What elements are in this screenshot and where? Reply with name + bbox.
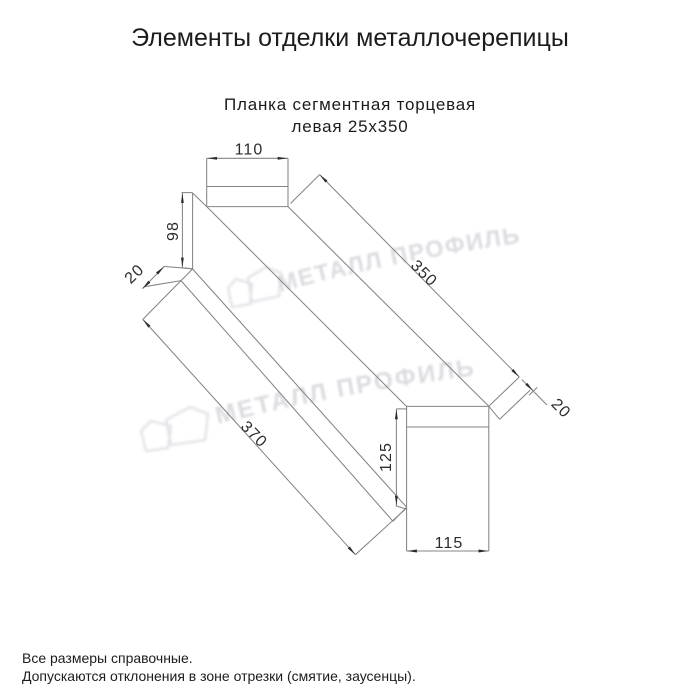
svg-text:98: 98 [165,221,182,241]
svg-text:110: 110 [235,142,264,159]
svg-text:20: 20 [122,261,148,287]
svg-text:20: 20 [548,396,574,422]
svg-text:350: 350 [407,257,440,290]
svg-text:115: 115 [435,535,464,552]
svg-text:370: 370 [237,418,270,451]
svg-text:125: 125 [378,442,395,472]
